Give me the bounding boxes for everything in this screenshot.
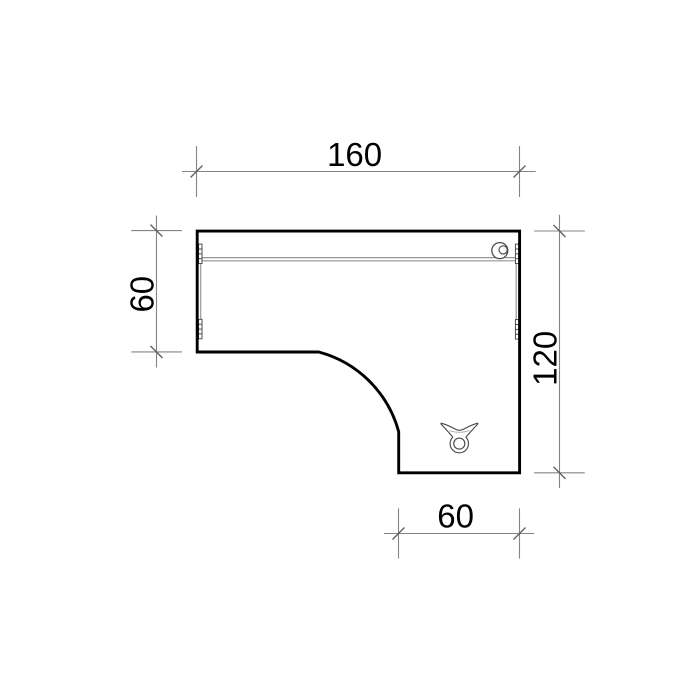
svg-text:60: 60 [437,498,474,535]
svg-text:160: 160 [327,136,382,173]
svg-text:60: 60 [124,276,161,313]
svg-text:120: 120 [527,331,564,386]
